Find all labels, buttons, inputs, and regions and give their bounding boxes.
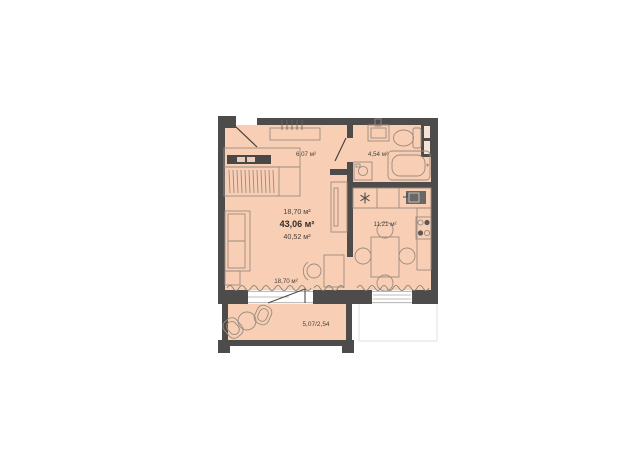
living-room-area-label: 18,70 м² xyxy=(274,278,298,285)
hallway-area-label: 6,07 м² xyxy=(296,151,316,158)
apartment-floor xyxy=(225,125,431,290)
summary-reduced-area: 40,52 м² xyxy=(283,232,311,241)
summary-living-area: 18,70 м² xyxy=(283,207,311,216)
balcony-area-label: 5,07/2,54 xyxy=(302,321,329,328)
kitchen-window xyxy=(372,290,412,304)
summary-total-area: 43,06 м² xyxy=(280,219,315,229)
bathroom-area-label: 4,54 м² xyxy=(368,151,388,158)
floor-plan-canvas: 6,07 м² 4,54 м² 11,21 м² 18,70 м² 5,07/2… xyxy=(0,0,644,470)
vent-shaft xyxy=(421,122,433,157)
living-room-window xyxy=(248,290,313,304)
area-summary: 18,70 м² 43,06 м² 40,52 м² xyxy=(280,207,315,241)
kitchen-area-label: 11,21 м² xyxy=(373,221,396,228)
neighbor-balcony-outline xyxy=(359,304,437,341)
kitchen-sink xyxy=(403,191,426,204)
